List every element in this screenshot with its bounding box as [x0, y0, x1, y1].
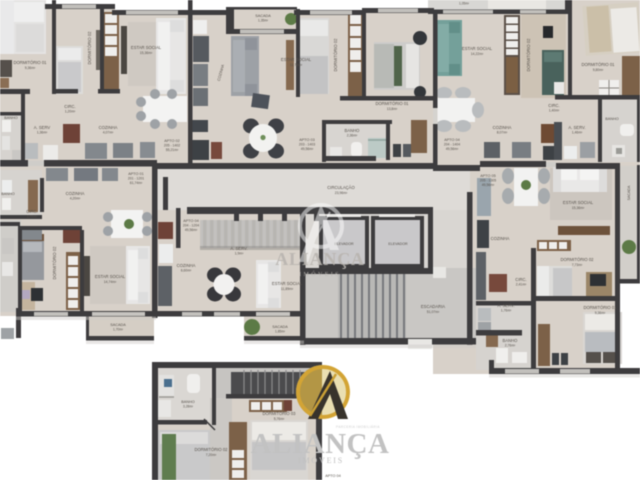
svg-text:ESTAR SOCIAL: ESTAR SOCIAL [272, 281, 303, 286]
svg-text:DORMITÓRIO 01: DORMITÓRIO 01 [375, 101, 409, 106]
svg-text:CIRC.: CIRC. [548, 103, 559, 108]
svg-text:CIRC.: CIRC. [64, 104, 75, 109]
svg-text:DORMITÓRIO 02: DORMITÓRIO 02 [526, 38, 531, 72]
svg-text:14,74m²: 14,74m² [104, 280, 117, 284]
svg-text:SACADA: SACADA [110, 323, 126, 327]
svg-text:1,05m²: 1,05m² [459, 2, 469, 6]
svg-text:CIRC.: CIRC. [515, 277, 526, 282]
svg-text:49,56m²: 49,56m² [301, 147, 314, 151]
svg-text:1,9m²: 1,9m² [235, 252, 245, 256]
svg-text:BANHO: BANHO [605, 117, 619, 121]
svg-text:2,76m²: 2,76m² [505, 344, 516, 348]
svg-text:APTO 01: APTO 01 [128, 172, 144, 176]
svg-text:1,40m²: 1,40m² [549, 109, 560, 113]
svg-text:13,8m²: 13,8m² [387, 107, 398, 111]
svg-text:14,22m²: 14,22m² [471, 52, 484, 56]
svg-text:5,76m²: 5,76m² [274, 417, 285, 421]
svg-text:DORMITÓRIO 01: DORMITÓRIO 01 [581, 62, 615, 67]
svg-text:11,75m²: 11,75m² [290, 63, 303, 67]
svg-text:49,56m²: 49,56m² [185, 228, 198, 232]
svg-text:BANHO: BANHO [503, 338, 519, 343]
svg-text:CIRC.: CIRC. [26, 209, 37, 214]
svg-text:DORMITÓRIO 02: DORMITÓRIO 02 [194, 447, 228, 452]
svg-text:ESTAR SOCIAL: ESTAR SOCIAL [95, 274, 126, 279]
svg-text:ESTAR SOCIAL: ESTAR SOCIAL [281, 57, 312, 62]
svg-text:DORMITÓRIO 01: DORMITÓRIO 01 [583, 305, 617, 310]
svg-text:BANHO: BANHO [181, 400, 195, 404]
svg-text:BANHO: BANHO [4, 116, 18, 120]
svg-text:CIRCULAÇÃO: CIRCULAÇÃO [327, 185, 355, 190]
svg-text:ALIANÇA: ALIANÇA [275, 249, 365, 269]
svg-text:COZINHA: COZINHA [493, 125, 512, 130]
svg-text:BANHO: BANHO [345, 128, 361, 133]
svg-text:49,56m²: 49,56m² [482, 183, 495, 187]
svg-text:APTO 04: APTO 04 [444, 138, 460, 142]
svg-text:1,70m²: 1,70m² [113, 328, 123, 332]
svg-text:205 - 1402: 205 - 1402 [164, 144, 180, 148]
svg-text:49,56m²: 49,56m² [446, 147, 459, 151]
svg-text:A. SERV: A. SERV [34, 125, 51, 130]
svg-text:203 - 1403: 203 - 1403 [299, 143, 315, 147]
svg-text:ELEVADOR: ELEVADOR [388, 242, 408, 246]
svg-text:APTO 03: APTO 03 [299, 138, 315, 142]
svg-text:APTO 04: APTO 04 [183, 219, 199, 223]
svg-text:7,73m²: 7,73m² [572, 263, 583, 267]
svg-text:55,21m²: 55,21m² [166, 148, 179, 152]
svg-text:15,36m²: 15,36m² [140, 51, 153, 55]
svg-text:3,28m²: 3,28m² [183, 405, 193, 409]
svg-text:7,20m²: 7,20m² [206, 453, 217, 457]
svg-text:APTO 05: APTO 05 [480, 174, 496, 178]
svg-text:A. SERV.: A. SERV. [568, 125, 585, 130]
svg-text:BANHO: BANHO [1, 192, 15, 196]
svg-text:COZINHA: COZINHA [177, 263, 196, 268]
svg-text:DORMITÓRIO 02: DORMITÓRIO 02 [560, 257, 594, 262]
svg-text:ESTAR SOCIAL: ESTAR SOCIAL [131, 45, 162, 50]
svg-text:9,36m²: 9,36m² [25, 66, 36, 70]
svg-text:4,20m²: 4,20m² [70, 197, 81, 201]
svg-text:A. SERV.: A. SERV. [230, 246, 247, 251]
svg-text:1,76m²: 1,76m² [501, 309, 512, 313]
svg-text:DORMITÓRIO 02: DORMITÓRIO 02 [87, 31, 92, 65]
svg-text:11,89m²: 11,89m² [281, 287, 294, 291]
svg-text:6,60m²: 6,60m² [181, 269, 192, 273]
svg-text:1,35m²: 1,35m² [258, 19, 268, 23]
svg-text:15,36m²: 15,36m² [572, 206, 585, 210]
svg-text:DORMITÓRIO 02: DORMITÓRIO 02 [52, 246, 57, 280]
svg-text:ESCADARIA: ESCADARIA [421, 304, 445, 309]
svg-text:204 - 1204: 204 - 1204 [183, 224, 199, 228]
svg-text:COZINHA: COZINHA [99, 125, 118, 130]
svg-text:1,36m²: 1,36m² [37, 131, 48, 135]
svg-text:DORMITÓRIO 02: DORMITÓRIO 02 [333, 38, 338, 72]
svg-text:IMÓVEIS: IMÓVEIS [299, 270, 341, 278]
svg-text:IMÓVEIS: IMÓVEIS [298, 455, 344, 465]
svg-text:COZINHA: COZINHA [491, 236, 510, 241]
svg-text:8,07m²: 8,07m² [497, 131, 508, 135]
svg-text:23,96m²: 23,96m² [335, 191, 348, 195]
svg-text:SACADA: SACADA [255, 14, 271, 18]
svg-text:ESTAR SOCIAL: ESTAR SOCIAL [563, 200, 594, 205]
svg-text:APTO 02: APTO 02 [164, 139, 180, 143]
svg-text:2,41m²: 2,41m² [516, 283, 527, 287]
svg-text:9,36m²: 9,36m² [595, 311, 606, 315]
svg-text:A. SERV.: A. SERV. [497, 303, 514, 308]
svg-text:APTO 04: APTO 04 [325, 474, 341, 478]
svg-text:1,85m²: 1,85m² [275, 330, 285, 334]
svg-text:4,07m²: 4,07m² [103, 131, 114, 135]
svg-text:51,07m²: 51,07m² [427, 310, 440, 314]
svg-text:2,36m²: 2,36m² [347, 134, 358, 138]
svg-text:COZINHA: COZINHA [66, 191, 85, 196]
svg-text:9,80m²: 9,80m² [593, 68, 604, 72]
svg-text:61,74m²: 61,74m² [130, 181, 143, 185]
svg-text:1,95m²: 1,95m² [27, 215, 38, 219]
svg-text:201 - 1201: 201 - 1201 [128, 177, 144, 181]
svg-text:DORMITÓRIO 03: DORMITÓRIO 03 [262, 411, 296, 416]
svg-text:SACADA: SACADA [627, 185, 631, 200]
svg-text:1,46m²: 1,46m² [572, 131, 583, 135]
svg-text:205 - 1305: 205 - 1305 [480, 179, 496, 183]
svg-text:ESTAR SOCIAL: ESTAR SOCIAL [462, 46, 493, 51]
svg-text:204 - 1404: 204 - 1404 [444, 143, 460, 147]
svg-text:1,20m²: 1,20m² [65, 110, 76, 114]
svg-text:ELEVADOR: ELEVADOR [334, 242, 354, 246]
svg-text:SACADA: SACADA [272, 325, 288, 329]
svg-text:DORMITÓRIO 01: DORMITÓRIO 01 [13, 60, 47, 65]
